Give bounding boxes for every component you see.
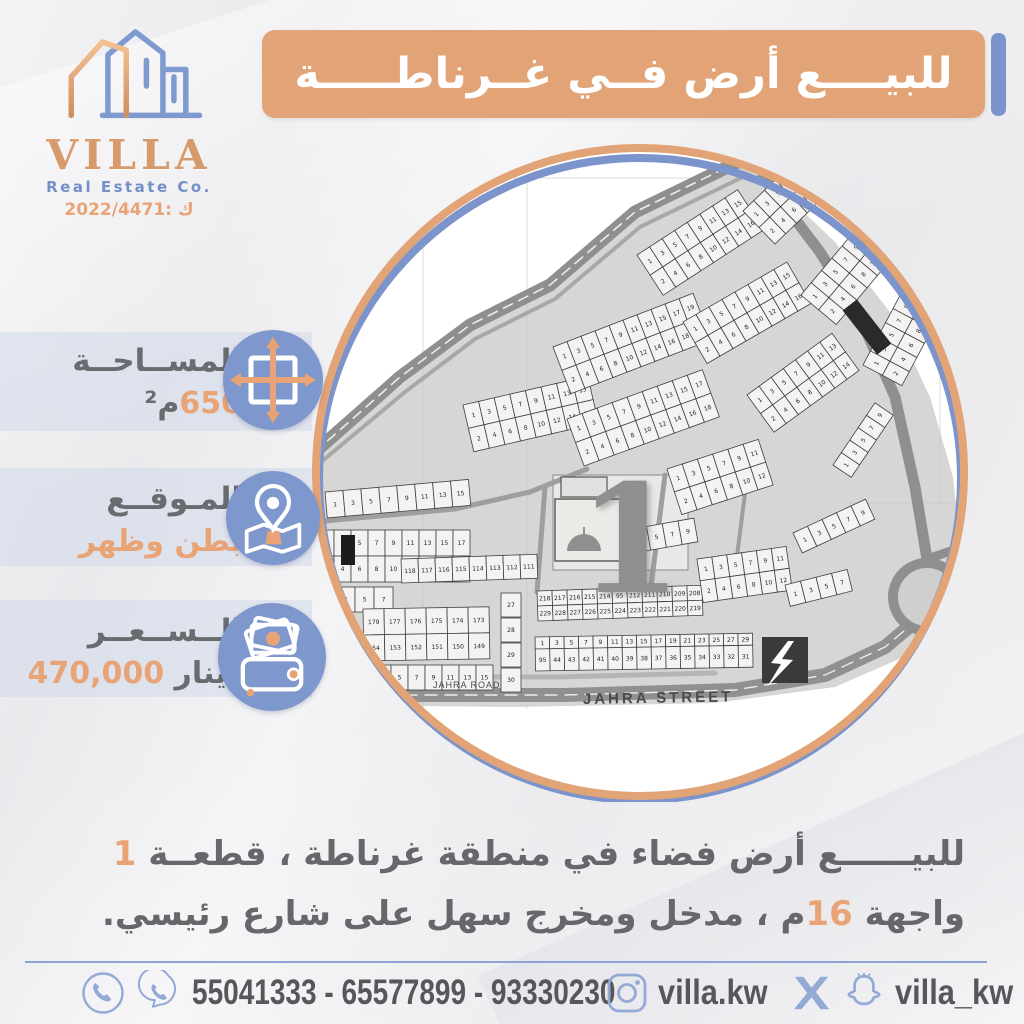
svg-text:3: 3 <box>351 500 356 507</box>
svg-text:38: 38 <box>640 655 648 662</box>
svg-text:179: 179 <box>368 619 380 626</box>
svg-text:12: 12 <box>779 577 788 585</box>
description-line-1: للبيــــــع أرض فضاء في منطقة غرناطة ، ق… <box>50 824 965 884</box>
svg-text:30: 30 <box>507 677 515 684</box>
svg-text:7: 7 <box>415 675 419 682</box>
svg-text:1: 1 <box>333 501 338 508</box>
svg-text:11: 11 <box>776 555 785 563</box>
svg-text:17: 17 <box>458 540 466 547</box>
phone-numbers[interactable]: 55041333 - 65577899 - 93330230 <box>192 973 616 1013</box>
buildings-logo-icon <box>44 20 214 130</box>
road-label-jahra-road: JAHRA ROAD <box>433 680 501 690</box>
svg-text:13: 13 <box>424 540 432 547</box>
svg-text:25: 25 <box>712 637 720 644</box>
svg-text:27: 27 <box>727 637 735 644</box>
svg-text:29: 29 <box>507 652 515 659</box>
x-icon[interactable] <box>791 970 833 1016</box>
svg-text:9: 9 <box>796 169 804 177</box>
svg-text:19: 19 <box>669 638 677 645</box>
svg-text:32: 32 <box>727 654 735 661</box>
plot-number: 1 <box>113 834 137 874</box>
svg-text:21: 21 <box>683 637 691 644</box>
svg-text:31: 31 <box>742 653 750 660</box>
svg-text:218: 218 <box>539 595 551 602</box>
banner-accent-bar <box>991 33 1006 116</box>
svg-text:115: 115 <box>455 566 467 573</box>
area-icon <box>223 330 323 430</box>
svg-text:7: 7 <box>926 214 934 220</box>
poster: VILLA Real Estate Co. 2022/4471: ك للبيـ… <box>0 0 1024 1024</box>
svg-text:17: 17 <box>654 638 662 645</box>
social-handle[interactable]: villa_kw <box>895 973 1013 1013</box>
area-unit: م² <box>144 386 179 421</box>
svg-text:11: 11 <box>611 639 619 646</box>
svg-text:7: 7 <box>382 597 386 604</box>
svg-text:12: 12 <box>822 174 832 184</box>
svg-text:11: 11 <box>407 540 415 547</box>
price-value: 470,000 <box>27 656 164 691</box>
svg-text:176: 176 <box>410 618 422 625</box>
svg-text:13: 13 <box>816 147 826 157</box>
svg-text:1: 1 <box>540 640 544 647</box>
utility-block <box>762 637 808 687</box>
svg-text:175: 175 <box>431 618 443 625</box>
area-label: المســاحــة <box>8 340 242 382</box>
svg-text:7: 7 <box>584 639 588 646</box>
svg-text:39: 39 <box>626 655 634 662</box>
instagram-icon[interactable] <box>604 970 650 1016</box>
svg-text:219: 219 <box>689 605 701 612</box>
instagram-handle[interactable]: villa.kw <box>658 973 768 1013</box>
svg-text:8: 8 <box>375 566 379 573</box>
description-line-2: واجهة 16م ، مدخل ومخرج سهل على شارع رئيس… <box>50 884 965 944</box>
svg-text:1: 1 <box>796 170 804 178</box>
svg-text:13: 13 <box>439 492 447 500</box>
svg-text:37: 37 <box>655 655 663 662</box>
svg-text:229: 229 <box>539 610 551 617</box>
svg-text:1: 1 <box>364 675 368 682</box>
svg-text:42: 42 <box>582 656 590 663</box>
svg-text:112: 112 <box>506 564 518 571</box>
page-title: للبيــــع أرض فــي غــرناطـــــة <box>294 49 952 99</box>
svg-text:10: 10 <box>390 566 398 573</box>
svg-text:228: 228 <box>554 610 566 617</box>
road-label-jahra-street: JAHRA STREET <box>583 688 734 708</box>
svg-text:208: 208 <box>689 590 701 597</box>
svg-text:117: 117 <box>421 567 433 574</box>
company-logo: VILLA Real Estate Co. 2022/4471: ك <box>34 20 224 222</box>
svg-text:6: 6 <box>358 566 362 573</box>
svg-text:11: 11 <box>806 157 816 167</box>
info-area: المســاحــة 650م² <box>8 340 242 426</box>
footer-divider <box>25 961 987 963</box>
social-info[interactable]: villa.kw villa_kw <box>604 970 1024 1016</box>
description-text: للبيــــــع أرض فضاء في منطقة غرناطة ، ق… <box>50 824 965 944</box>
svg-text:27: 27 <box>507 602 515 609</box>
location-value: بطن وظهر <box>8 520 242 564</box>
logo-license-number: 2022/4471: ك <box>34 198 224 222</box>
svg-text:1: 1 <box>913 256 921 262</box>
price-icon <box>218 603 326 711</box>
frontage-number: 16 <box>805 894 852 934</box>
logo-name: VILLA <box>34 134 224 176</box>
svg-text:174: 174 <box>452 617 464 624</box>
svg-text:3: 3 <box>806 159 814 167</box>
svg-text:35: 35 <box>684 654 692 661</box>
svg-text:15: 15 <box>441 540 449 547</box>
svg-text:116: 116 <box>438 567 450 574</box>
svg-text:34: 34 <box>698 654 706 661</box>
svg-text:151: 151 <box>431 644 443 651</box>
svg-text:118: 118 <box>404 568 416 575</box>
svg-text:28: 28 <box>507 627 515 634</box>
svg-text:5: 5 <box>363 597 367 604</box>
svg-text:15: 15 <box>457 490 465 498</box>
title-banner: للبيــــع أرض فــي غــرناطـــــة <box>262 30 985 118</box>
svg-text:95: 95 <box>539 657 547 664</box>
svg-text:13: 13 <box>625 638 633 645</box>
svg-text:149: 149 <box>473 643 485 650</box>
svg-text:9: 9 <box>405 495 410 502</box>
svg-text:3: 3 <box>555 640 559 647</box>
svg-text:5: 5 <box>922 228 930 234</box>
svg-text:3: 3 <box>917 242 925 248</box>
location-icon <box>226 471 320 565</box>
svg-text:113: 113 <box>489 565 501 572</box>
svg-text:5: 5 <box>398 675 402 682</box>
svg-text:217: 217 <box>554 595 566 602</box>
phone-icon[interactable] <box>80 970 126 1016</box>
svg-text:153: 153 <box>389 645 401 652</box>
svg-text:44: 44 <box>553 657 561 664</box>
svg-text:29: 29 <box>741 636 749 643</box>
svg-text:40: 40 <box>611 656 619 663</box>
logo-subtitle: Real Estate Co. <box>34 176 224 198</box>
svg-text:7: 7 <box>825 142 833 147</box>
block-number-label: 1 <box>578 452 682 628</box>
svg-text:173: 173 <box>473 617 485 624</box>
svg-text:33: 33 <box>713 654 721 661</box>
svg-text:5: 5 <box>815 149 823 157</box>
svg-text:10: 10 <box>764 579 773 587</box>
svg-text:7: 7 <box>375 540 379 547</box>
svg-text:9: 9 <box>598 639 602 646</box>
svg-text:36: 36 <box>669 655 677 662</box>
location-label: المـوقــع <box>8 478 242 520</box>
whatsapp-icon[interactable] <box>136 970 182 1016</box>
svg-text:111: 111 <box>523 564 535 571</box>
svg-text:152: 152 <box>410 644 422 651</box>
svg-text:5: 5 <box>358 540 362 547</box>
svg-text:41: 41 <box>597 656 605 663</box>
info-price: الــســعــر 470,000 دينار <box>8 610 242 696</box>
svg-text:9: 9 <box>392 540 396 547</box>
svg-text:5: 5 <box>369 498 374 505</box>
svg-text:43: 43 <box>568 656 576 663</box>
svg-text:4: 4 <box>341 566 345 573</box>
svg-text:11: 11 <box>421 493 429 501</box>
svg-text:15: 15 <box>640 638 648 645</box>
svg-text:177: 177 <box>389 619 401 626</box>
svg-text:150: 150 <box>452 643 464 650</box>
plot-map: 1357911131517246810121416181357911131513… <box>310 142 970 802</box>
info-location: المـوقــع بطن وظهر <box>8 478 242 564</box>
svg-text:114: 114 <box>472 565 484 572</box>
svg-text:14: 14 <box>832 163 842 173</box>
svg-text:7: 7 <box>387 496 392 503</box>
svg-text:23: 23 <box>698 637 706 644</box>
price-label: الــســعــر <box>8 610 242 652</box>
svg-text:5: 5 <box>569 640 573 647</box>
snapchat-icon[interactable] <box>841 970 887 1016</box>
